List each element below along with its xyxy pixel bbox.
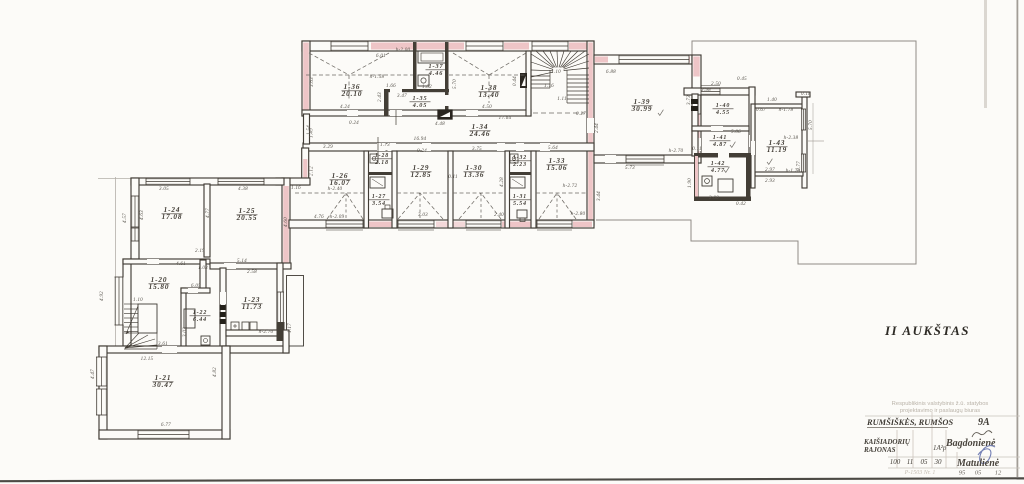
svg-text:h-2.00: h-2.00 [396,47,411,53]
svg-text:Matulienė: Matulienė [956,458,1000,469]
svg-text:3.02: 3.02 [182,327,188,337]
svg-text:4.82: 4.82 [212,367,218,377]
svg-text:1-42: 1-42 [711,161,726,167]
svg-text:1.16: 1.16 [544,83,554,89]
svg-text:12.85: 12.85 [411,171,432,179]
svg-text:h-1.78: h-1.78 [779,107,794,113]
svg-text:0.24: 0.24 [417,148,427,154]
svg-text:6.05: 6.05 [191,283,201,289]
svg-text:17.08: 17.08 [162,213,183,221]
svg-text:5.70: 5.70 [452,79,458,89]
svg-text:4.77: 4.77 [710,168,725,174]
svg-text:5.06: 5.06 [731,129,741,135]
svg-text:4.24: 4.24 [340,104,350,110]
svg-text:h-2.40: h-2.40 [328,186,343,192]
svg-text:h-2.70: h-2.70 [669,148,684,154]
svg-text:1-32: 1-32 [513,155,527,161]
svg-text:4.57: 4.57 [122,213,128,223]
svg-text:1.90: 1.90 [687,178,693,188]
svg-text:4.61: 4.61 [176,261,186,267]
svg-text:5.70: 5.70 [808,120,814,130]
svg-text:15.80: 15.80 [149,283,170,291]
svg-text:1.49: 1.49 [309,128,315,138]
svg-text:2.98: 2.98 [701,87,711,93]
svg-text:3.05: 3.05 [159,186,169,192]
svg-text:1.10: 1.10 [551,69,561,75]
svg-text:13.40: 13.40 [479,91,500,99]
svg-text:3.47: 3.47 [397,93,407,99]
svg-text:1-27: 1-27 [372,194,386,200]
svg-text:1A²p: 1A²p [933,444,947,452]
svg-text:h-2.70: h-2.70 [259,329,274,335]
svg-text:P-1503 Nr. 1: P-1503 Nr. 1 [904,470,936,476]
svg-text:2.40: 2.40 [494,212,504,218]
svg-text:6.01: 6.01 [376,53,386,59]
svg-text:4.63: 4.63 [139,210,145,220]
svg-text:3.73: 3.73 [686,95,692,105]
svg-text:1.17: 1.17 [287,323,293,333]
svg-text:12.15: 12.15 [141,356,154,362]
svg-text:4.92: 4.92 [99,291,105,301]
svg-text:2.93: 2.93 [765,178,775,184]
svg-text:05: 05 [921,458,929,466]
svg-text:RUMŠIŠKĖS, RUMŠOS: RUMŠIŠKĖS, RUMŠOS [866,417,953,427]
svg-text:1-40: 1-40 [716,103,731,109]
svg-text:h-2.09: h-2.09 [330,214,345,220]
svg-text:3.03: 3.03 [418,212,428,218]
svg-text:5.14: 5.14 [237,258,247,264]
svg-text:0.67: 0.67 [756,107,766,113]
svg-text:4.77: 4.77 [205,208,211,218]
svg-text:3.63: 3.63 [309,77,315,87]
svg-text:1-31: 1-31 [513,194,527,200]
svg-text:4.87: 4.87 [712,142,727,148]
svg-text:1.40: 1.40 [767,97,777,103]
svg-text:24.46: 24.46 [469,130,491,138]
svg-text:30: 30 [934,458,943,466]
svg-text:4.28: 4.28 [499,177,505,187]
svg-text:Bagdonienė: Bagdonienė [945,438,996,449]
svg-text:11.73: 11.73 [242,303,262,311]
svg-text:30.99: 30.99 [631,105,653,113]
svg-text:30.47: 30.47 [152,381,174,389]
svg-text:2.23: 2.23 [512,162,527,168]
svg-text:II AUKŠTAS: II AUKŠTAS [884,323,970,338]
svg-text:4.46: 4.46 [428,70,443,77]
svg-text:9A: 9A [978,417,990,428]
svg-text:17.64: 17.64 [499,115,512,121]
svg-text:13.36: 13.36 [464,171,485,179]
svg-text:3.75: 3.75 [472,146,482,152]
svg-text:20.10: 20.10 [341,90,363,98]
svg-text:15.06: 15.06 [547,164,568,172]
svg-text:12: 12 [995,470,1002,477]
svg-text:0.11: 0.11 [692,146,702,152]
svg-text:3.44: 3.44 [596,191,602,201]
svg-text:0.24: 0.24 [349,120,359,126]
svg-text:2.43: 2.43 [377,92,383,102]
svg-text:4.48: 4.48 [435,121,445,127]
svg-text:1-37: 1-37 [429,63,444,70]
svg-text:0.27: 0.27 [576,111,586,117]
svg-text:0.11: 0.11 [448,174,458,180]
svg-text:h-1.58: h-1.58 [370,74,385,80]
svg-text:11.19: 11.19 [767,146,787,154]
svg-text:h-2.80: h-2.80 [571,211,586,217]
svg-text:4.38: 4.38 [238,186,248,192]
svg-text:KAIŠIADORIŲ: KAIŠIADORIŲ [863,438,911,446]
svg-text:5.73: 5.73 [625,165,635,171]
svg-text:6.88: 6.88 [606,69,616,75]
svg-text:2.18: 2.18 [374,160,389,166]
svg-text:6.77: 6.77 [161,422,171,428]
svg-text:0.44: 0.44 [512,76,518,86]
svg-text:RAJONAS: RAJONAS [863,446,896,454]
svg-text:1-28: 1-28 [375,153,389,159]
svg-text:0.45: 0.45 [737,76,747,82]
svg-text:projektavimo ir paslaugų biura: projektavimo ir paslaugų biuras [900,408,980,414]
svg-text:4.47: 4.47 [90,369,96,379]
svg-text:5.64: 5.64 [548,145,558,151]
svg-text:2.58: 2.58 [247,269,257,275]
svg-text:2.50: 2.50 [711,81,721,87]
svg-text:4.05: 4.05 [412,102,427,109]
svg-text:4.60: 4.60 [283,217,289,227]
svg-text:1.82: 1.82 [422,84,432,90]
svg-text:6.44: 6.44 [193,317,207,323]
svg-text:1-35: 1-35 [413,95,428,102]
svg-text:1-22: 1-22 [193,310,208,316]
svg-text:2.44: 2.44 [594,123,600,133]
svg-text:5.54: 5.54 [513,201,527,207]
svg-text:0.77: 0.77 [796,161,802,171]
svg-text:3.54: 3.54 [371,201,386,207]
svg-text:1.10: 1.10 [133,297,143,303]
svg-text:h-2.38: h-2.38 [784,135,799,141]
svg-text:0.18: 0.18 [801,91,811,97]
svg-text:0.42: 0.42 [736,201,746,207]
svg-text:h-2.72: h-2.72 [563,183,578,189]
svg-text:2.19: 2.19 [195,248,205,254]
svg-text:4.55: 4.55 [715,110,730,116]
svg-text:2.12: 2.12 [309,166,315,176]
svg-text:1-41: 1-41 [713,135,728,141]
svg-text:1.16: 1.16 [291,185,301,191]
svg-text:20.55: 20.55 [236,214,258,222]
svg-text:11: 11 [907,458,913,466]
svg-text:4.50: 4.50 [482,104,492,110]
svg-text:3.00: 3.00 [709,195,719,201]
svg-text:1.73: 1.73 [380,142,390,148]
svg-text:100: 100 [890,458,901,466]
svg-text:1.11: 1.11 [557,96,567,102]
svg-text:16.94: 16.94 [414,136,427,142]
svg-text:3.29: 3.29 [323,144,333,150]
svg-text:Respublikinis valstybinis ž.ū.: Respublikinis valstybinis ž.ū. statybos [892,401,989,407]
svg-text:1.66: 1.66 [386,83,396,89]
svg-text:1.03: 1.03 [198,265,208,271]
svg-text:2.97: 2.97 [765,167,775,173]
svg-text:05: 05 [975,470,982,477]
svg-text:95: 95 [959,470,966,477]
svg-text:4.76: 4.76 [314,214,324,220]
svg-text:3.61: 3.61 [158,341,168,347]
